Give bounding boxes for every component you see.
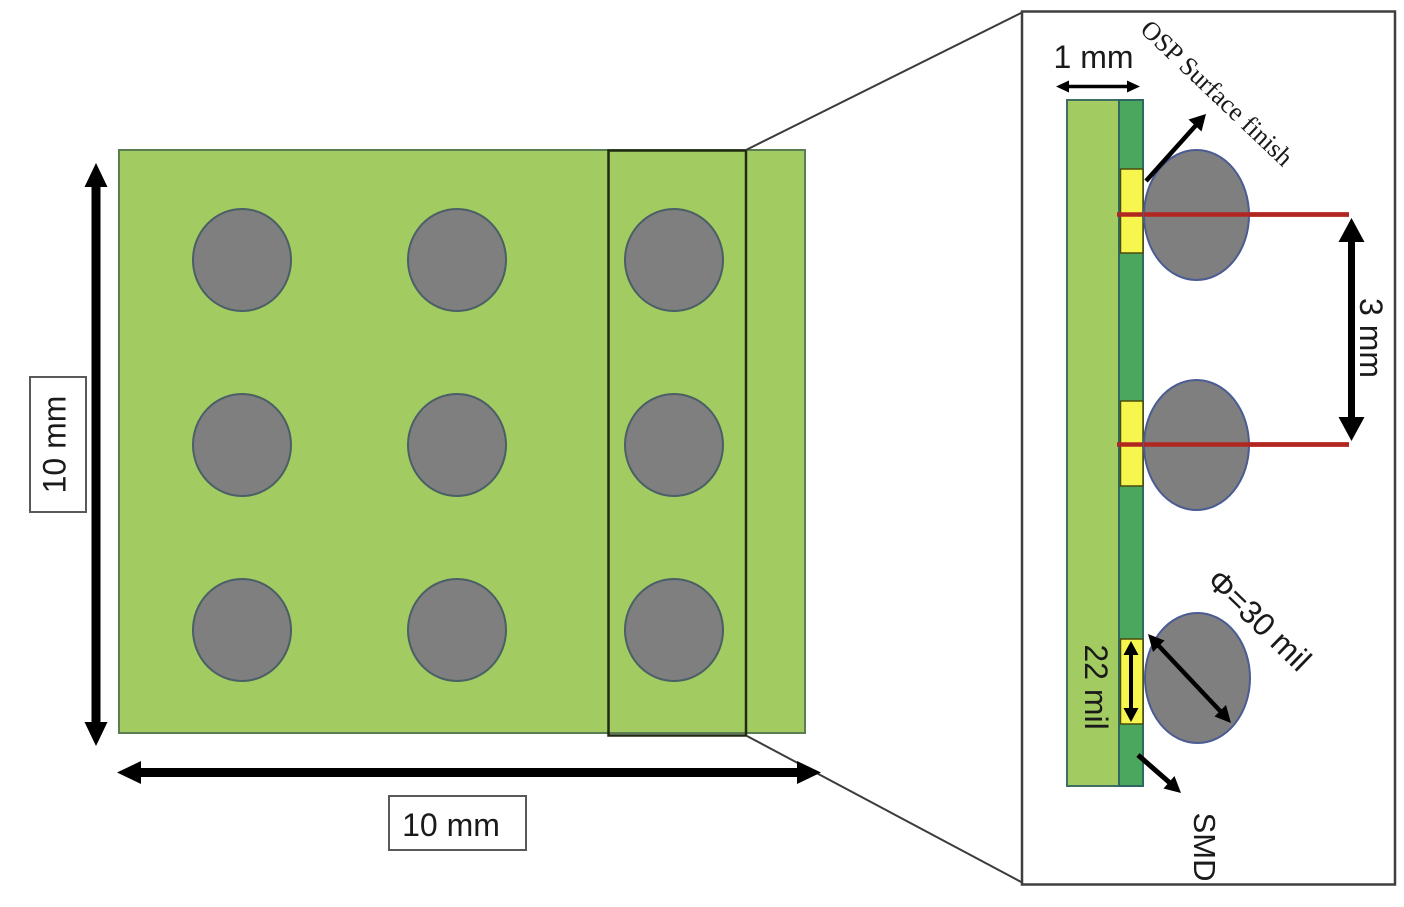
svg-text:3 mm: 3 mm <box>1353 298 1389 378</box>
svg-text:22 mil: 22 mil <box>1078 644 1114 729</box>
svg-text:10 mm: 10 mm <box>402 807 500 843</box>
svg-text:1 mm: 1 mm <box>1054 39 1134 75</box>
svg-text:10 mm: 10 mm <box>37 396 73 494</box>
svg-text:SMD: SMD <box>1187 813 1222 882</box>
